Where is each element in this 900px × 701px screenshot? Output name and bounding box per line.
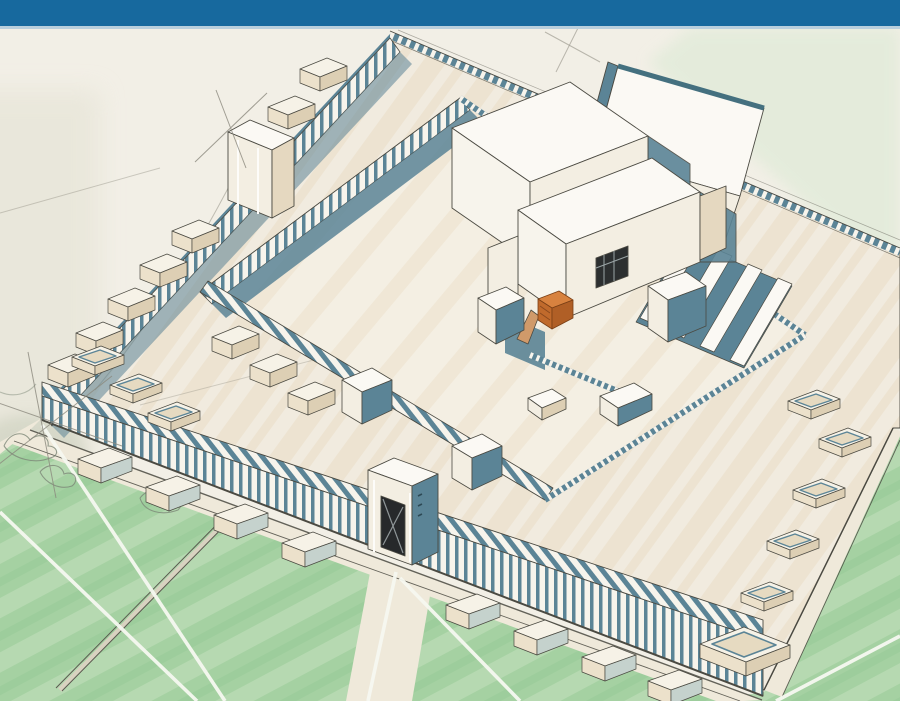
header-bar-underline [0, 26, 900, 29]
tower-side [272, 138, 294, 218]
header-bar-fill [0, 0, 900, 26]
screenshot-stage [0, 0, 900, 701]
porch-wing-right [700, 186, 726, 260]
tower-side [412, 474, 438, 565]
gate-tower-south [368, 458, 438, 565]
temple-complex-illustration [0, 0, 900, 701]
gate-tower-northwest [228, 120, 294, 218]
header-bar [0, 0, 900, 29]
